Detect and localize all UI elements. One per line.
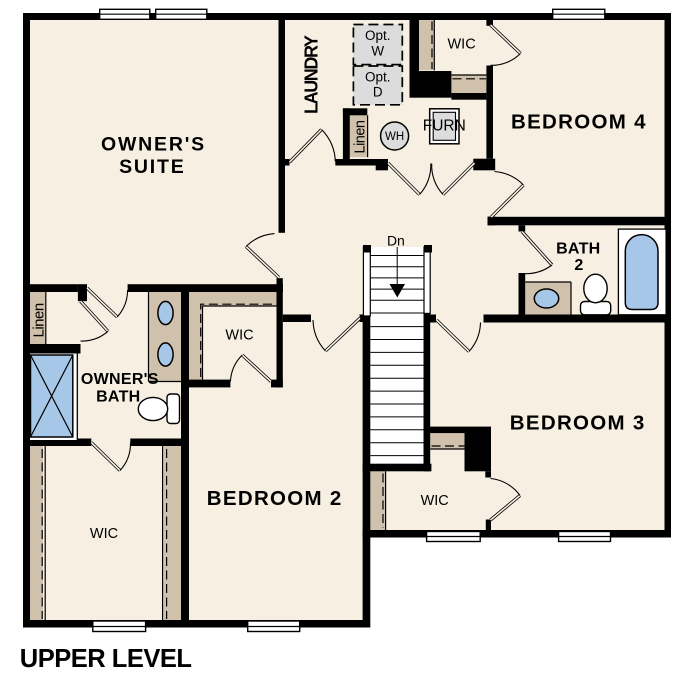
svg-text:OWNER'S: OWNER'S <box>101 133 206 155</box>
svg-text:WIC: WIC <box>225 328 253 344</box>
svg-text:SUITE: SUITE <box>119 156 185 178</box>
svg-text:BATH: BATH <box>96 388 140 405</box>
svg-text:WIC: WIC <box>90 526 118 542</box>
svg-text:WIC: WIC <box>421 493 449 509</box>
svg-text:BEDROOM 3: BEDROOM 3 <box>510 412 646 435</box>
svg-text:BEDROOM 4: BEDROOM 4 <box>511 111 647 134</box>
svg-text:FURN: FURN <box>423 118 466 135</box>
svg-text:Linen: Linen <box>353 120 369 153</box>
svg-text:OWNER'S: OWNER'S <box>81 371 159 388</box>
svg-text:WH: WH <box>385 131 404 143</box>
svg-text:Opt.: Opt. <box>365 28 391 43</box>
svg-text:Opt.: Opt. <box>365 70 391 85</box>
svg-text:W: W <box>371 43 384 58</box>
svg-text:WIC: WIC <box>448 37 476 53</box>
svg-text:Dn: Dn <box>387 233 405 249</box>
svg-text:BATH: BATH <box>556 241 600 258</box>
svg-text:Linen: Linen <box>31 303 48 337</box>
svg-text:2: 2 <box>574 257 583 274</box>
svg-text:BEDROOM 2: BEDROOM 2 <box>207 487 343 510</box>
svg-text:UPPER LEVEL: UPPER LEVEL <box>20 645 192 673</box>
svg-text:LAUNDRY: LAUNDRY <box>302 35 322 114</box>
svg-text:D: D <box>373 85 383 100</box>
